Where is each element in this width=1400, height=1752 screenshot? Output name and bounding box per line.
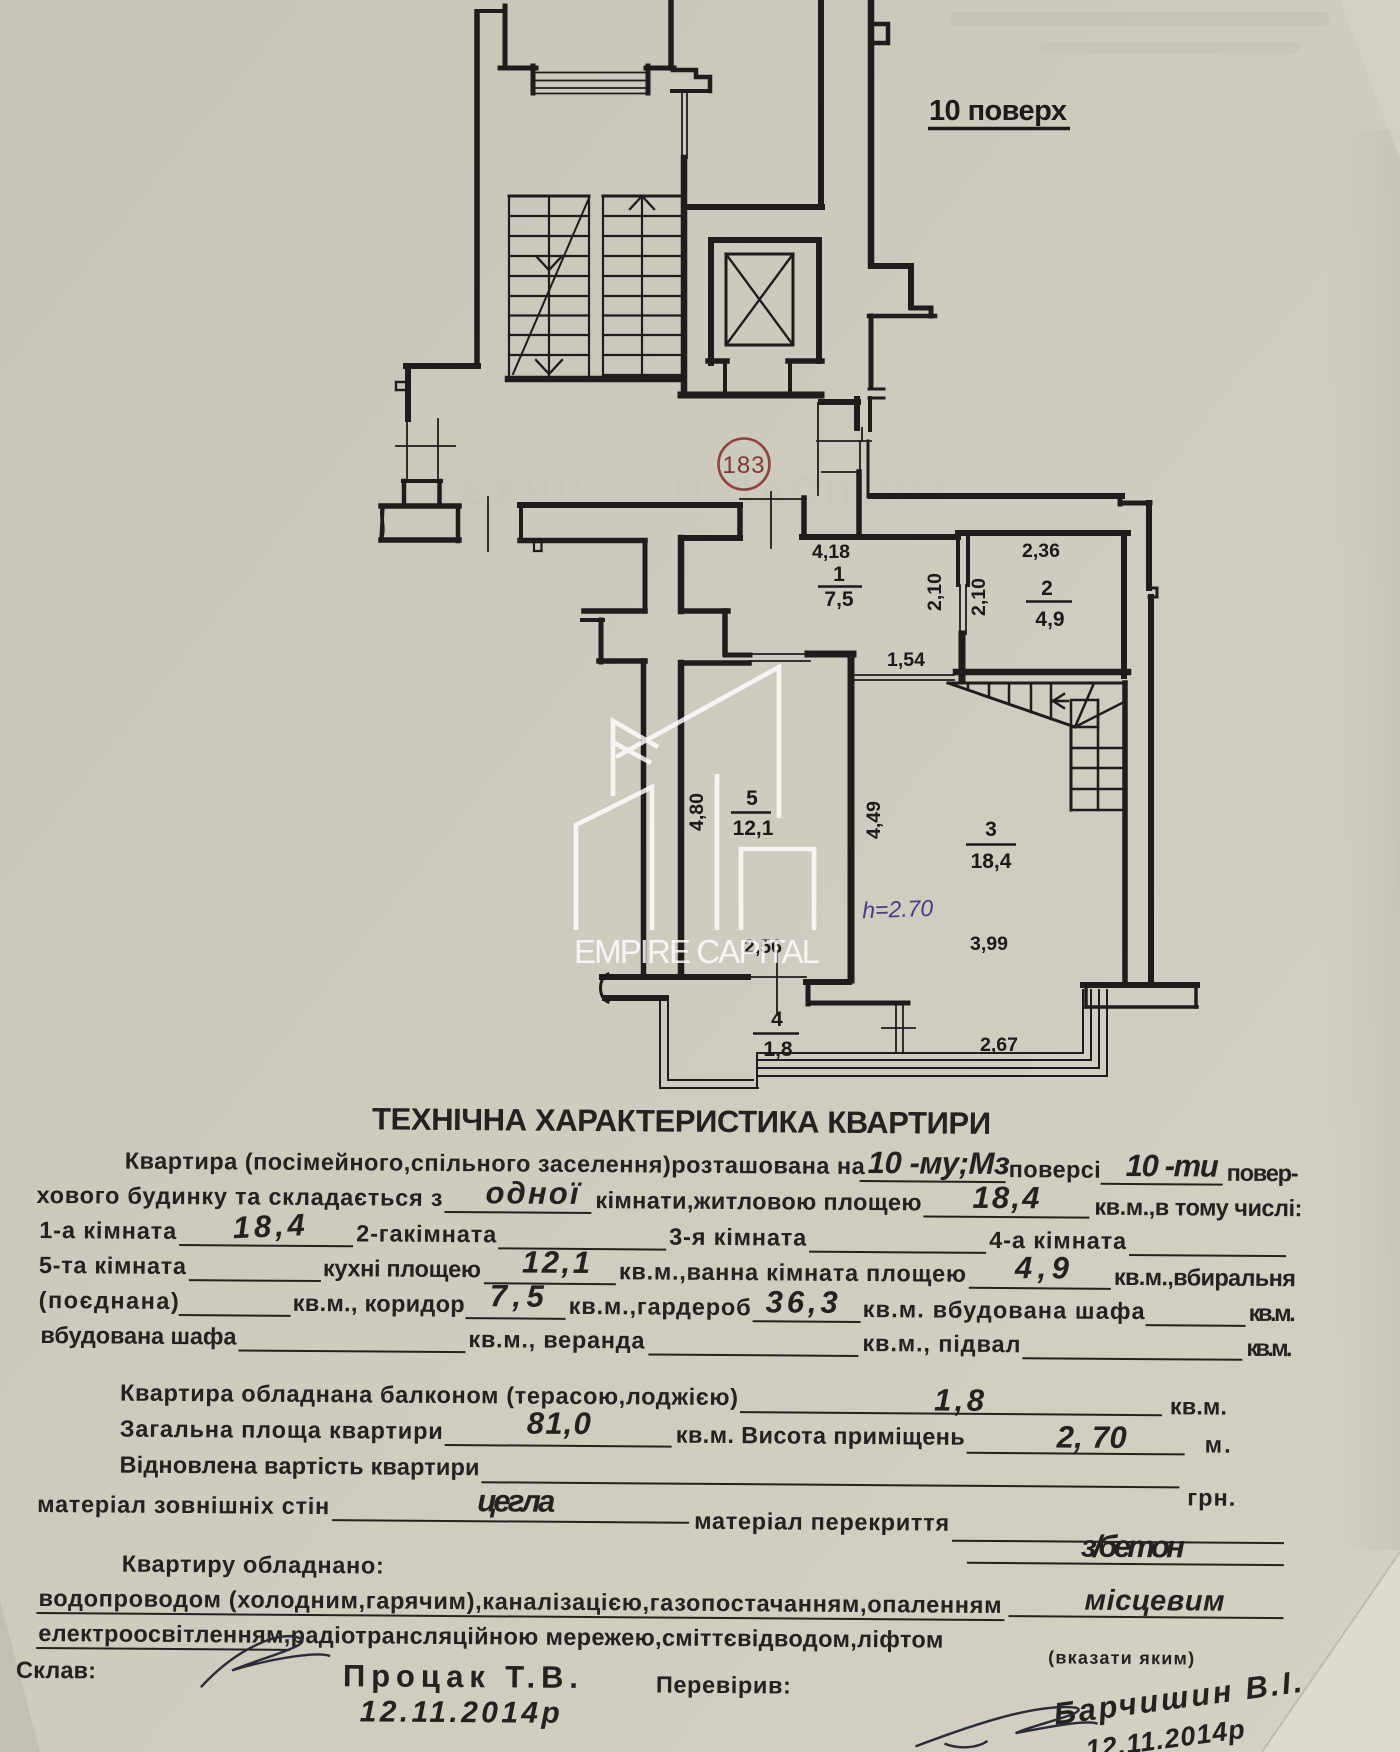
svg-text:Склав:: Склав: (16, 1657, 96, 1684)
svg-text:7,5: 7,5 (490, 1278, 545, 1313)
svg-text:h=2.70: h=2.70 (862, 895, 934, 923)
svg-text:EMPIRE CAPITAL: EMPIRE CAPITAL (574, 933, 822, 970)
svg-text:4,80: 4,80 (686, 793, 708, 831)
svg-text:грн.: грн. (1187, 1484, 1235, 1510)
svg-text:18,4: 18,4 (972, 1180, 1039, 1215)
svg-text:кв.м., підвал: кв.м., підвал (862, 1330, 1020, 1357)
svg-text:2,10: 2,10 (968, 578, 990, 616)
svg-text:3,99: 3,99 (970, 933, 1008, 955)
svg-text:2,36: 2,36 (1022, 540, 1060, 562)
svg-text:3-я кімната: 3-я кімната (669, 1224, 807, 1251)
svg-text:кімнати,житловою площею: кімнати,житловою площею (595, 1187, 921, 1215)
svg-text:(поєднана): (поєднана) (39, 1287, 179, 1314)
svg-text:4,49: 4,49 (863, 801, 885, 839)
svg-text:кв.м.,в тому числі:: кв.м.,в тому числі: (1094, 1194, 1302, 1222)
svg-text:2,67: 2,67 (980, 1034, 1018, 1056)
svg-text:кв.м.: кв.м. (1249, 1300, 1296, 1326)
svg-text:кв.м.: кв.м. (1170, 1393, 1227, 1419)
svg-text:вбудована шафа: вбудована шафа (40, 1322, 237, 1349)
svg-text:183: 183 (722, 452, 765, 479)
svg-text:4,9: 4,9 (1035, 608, 1064, 631)
svg-text:хового будинку та складається: хового будинку та складається з (36, 1182, 442, 1211)
svg-text:кв.м. вбудована шафа: кв.м. вбудована шафа (863, 1296, 1146, 1324)
svg-text:Квартира обладнана балконом (т: Квартира обладнана балконом (терасою,лод… (120, 1380, 738, 1411)
svg-text:одної: одної (485, 1175, 582, 1211)
svg-text:81,0: 81,0 (527, 1406, 591, 1441)
svg-text:повер-: повер- (1227, 1160, 1299, 1187)
svg-text:1-а кімната: 1-а кімната (39, 1217, 177, 1244)
svg-text:кв.м., коридор: кв.м., коридор (293, 1290, 465, 1317)
svg-text:4: 4 (771, 1008, 783, 1031)
svg-text:3: 3 (985, 818, 997, 841)
svg-text:з/бетон: з/бетон (1081, 1529, 1186, 1565)
svg-text:12,1: 12,1 (522, 1245, 590, 1280)
svg-text:1: 1 (833, 563, 845, 586)
svg-text:4,18: 4,18 (812, 541, 850, 563)
svg-text:36,3: 36,3 (766, 1284, 838, 1320)
svg-text:10 поверх: 10 поверх (929, 95, 1067, 127)
svg-text:(вказати яким): (вказати яким) (1048, 1647, 1194, 1668)
svg-text:м.: м. (1205, 1432, 1231, 1458)
svg-text:кв.м. Висота приміщень: кв.м. Висота приміщень (676, 1422, 965, 1450)
svg-text:Процак Т.В.: Процак Т.В. (343, 1658, 578, 1695)
svg-text:1,54: 1,54 (887, 649, 925, 671)
svg-text:ТЕХНІЧНА ХАРАКТЕРИСТИКА КВАРТИ: ТЕХНІЧНА ХАРАКТЕРИСТИКА КВАРТИРИ (372, 1101, 992, 1141)
svg-text:10 -му;Мз: 10 -му;Мз (868, 1145, 1010, 1181)
svg-text:кв.м.,гардероб: кв.м.,гардероб (569, 1293, 751, 1320)
svg-text:кв.м., веранда: кв.м., веранда (468, 1326, 645, 1353)
svg-text:10 -ти: 10 -ти (1126, 1148, 1219, 1184)
svg-text:Відновлена вартість квартири: Відновлена вартість квартири (119, 1452, 479, 1481)
svg-text:1,8: 1,8 (763, 1038, 793, 1061)
svg-text:поверсі: поверсі (1009, 1156, 1101, 1183)
svg-text:2,10: 2,10 (924, 573, 946, 611)
svg-text:2: 2 (1041, 577, 1053, 600)
svg-text:матеріал перекриття: матеріал перекриття (694, 1508, 949, 1536)
svg-text:2, 70: 2, 70 (1056, 1419, 1127, 1455)
svg-text:12,1: 12,1 (733, 817, 774, 840)
svg-text:кв.м.,вбиральня: кв.м.,вбиральня (1114, 1264, 1296, 1291)
svg-text:4,9: 4,9 (1014, 1250, 1070, 1285)
svg-text:Квартиру обладнано:: Квартиру обладнано: (122, 1551, 384, 1579)
svg-text:18,4: 18,4 (971, 850, 1012, 873)
svg-text:Квартира (посімейного,спільног: Квартира (посімейного,спільного заселенн… (125, 1148, 866, 1179)
svg-text:Загальна площа квартири: Загальна площа квартири (120, 1416, 443, 1444)
svg-text:цегла: цегла (477, 1483, 555, 1519)
svg-text:кв.м.,ванна кімната площею: кв.м.,ванна кімната площею (619, 1258, 966, 1287)
svg-text:5-та кімната: 5-та кімната (39, 1252, 187, 1279)
svg-text:матеріал зовнішніх стін: матеріал зовнішніх стін (37, 1491, 329, 1519)
svg-text:2-гакімната: 2-гакімната (356, 1220, 497, 1247)
svg-text:місцевим: місцевим (1084, 1585, 1224, 1618)
svg-text:Перевірив:: Перевірив: (656, 1672, 791, 1699)
svg-text:7,5: 7,5 (824, 588, 854, 611)
svg-text:кв.м.: кв.м. (1246, 1335, 1292, 1361)
svg-text:5: 5 (746, 787, 758, 810)
svg-text:кухні площею: кухні площею (323, 1255, 481, 1282)
svg-text:18,4: 18,4 (232, 1207, 306, 1245)
